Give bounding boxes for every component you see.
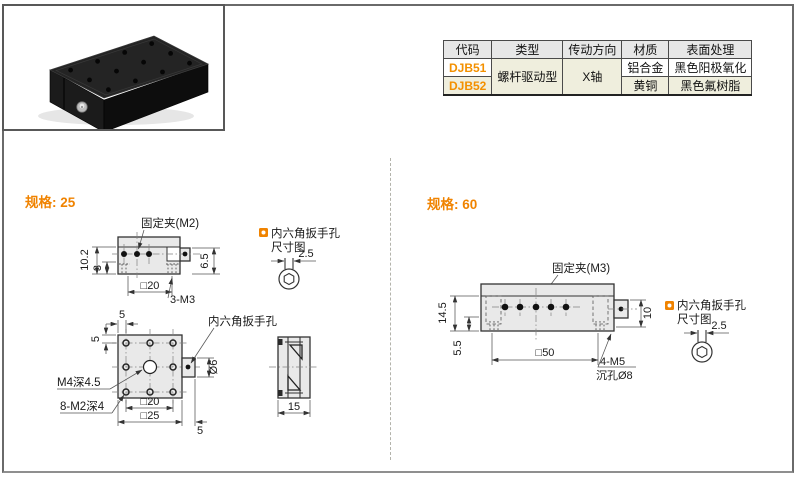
product-photo-box xyxy=(2,4,225,131)
spec60-4m5-label: 4-M5 xyxy=(600,356,625,368)
spec60-dim-5-5: 5.5 xyxy=(452,340,464,355)
table-row-djb51: DJB51 螺杆驱动型 X轴 铝合金 黑色阳极氧化 xyxy=(444,59,752,77)
spec25-center-hole xyxy=(144,361,157,374)
spec25-drawing: 固定夹(M2) 10.2 3 6.5 □20 3-M3 xyxy=(40,212,340,447)
col-material: 材质 xyxy=(622,41,669,59)
finish-djb52: 黑色氟树脂 xyxy=(669,77,752,96)
col-finish: 表面处理 xyxy=(669,41,752,59)
spec60-dim-14-5: 14.5 xyxy=(437,302,449,323)
spec60-dim-10: 10 xyxy=(642,307,654,319)
spec25-dim-10-2: 10.2 xyxy=(79,249,91,270)
spec60-dim-2-5: 2.5 xyxy=(711,320,726,332)
spec60-counterbore-label: 沉孔Ø8 xyxy=(596,369,633,382)
table-header-row: 代码 类型 传动方向 材质 表面处理 xyxy=(444,41,752,59)
product-photo xyxy=(4,6,223,129)
material-djb51: 铝合金 xyxy=(622,59,669,77)
spec60-title: 规格: 60 xyxy=(427,193,477,213)
direction-cell: X轴 xyxy=(563,59,622,96)
spec25-hex-circle xyxy=(279,269,299,289)
spec60-clamp-label: 固定夹(M3) xyxy=(552,261,610,275)
spec25-dim-d6: Ø6 xyxy=(208,360,220,375)
spec25-dim-5-right: 5 xyxy=(197,425,203,437)
section-divider xyxy=(390,158,391,460)
spec25-dim-15: 15 xyxy=(288,401,300,413)
spec25-dim-sq20-front: □20 xyxy=(141,280,160,292)
code-djb52: DJB52 xyxy=(444,77,492,96)
col-direction: 传动方向 xyxy=(563,41,622,59)
spec60-hex-circle xyxy=(692,342,712,362)
spec60-front-view: 固定夹(M3) xyxy=(437,261,654,382)
spec25-front-view: 固定夹(M2) 10.2 3 6.5 □20 3-M3 xyxy=(79,216,220,306)
spec25-m4-label: M4深4.5 xyxy=(57,375,100,389)
material-djb52: 黄铜 xyxy=(622,77,669,96)
spec25-dim-sq20-top: □20 xyxy=(141,396,160,408)
spec25-dim-5-left: 5 xyxy=(90,336,102,342)
spec25-dim-6-5: 6.5 xyxy=(199,253,211,268)
spec60-hex-note: 内六角扳手孔 尺寸图 2.5 xyxy=(665,298,746,362)
spec60-dim-sq50: □50 xyxy=(536,347,555,359)
stage-knob xyxy=(77,102,87,112)
spec25-hex-note: 内六角扳手孔 尺寸图 2.5 xyxy=(259,226,340,289)
code-djb51: DJB51 xyxy=(444,59,492,77)
spec25-clamp-label: 固定夹(M2) xyxy=(141,216,199,230)
catalog-page: 代码 类型 传动方向 材质 表面处理 DJB51 螺杆驱动型 X轴 铝合金 黑色… xyxy=(0,0,802,480)
spec25-dim-2-5: 2.5 xyxy=(298,248,313,260)
spec25-wrench-hole-label: 内六角扳手孔 xyxy=(208,314,277,328)
spec25-dim-sq25: □25 xyxy=(141,410,160,422)
spec60-hex-title: 内六角扳手孔 xyxy=(677,298,746,312)
finish-djb51: 黑色阳极氧化 xyxy=(669,59,752,77)
spec-table: 代码 类型 传动方向 材质 表面处理 DJB51 螺杆驱动型 X轴 铝合金 黑色… xyxy=(443,40,752,96)
col-type: 类型 xyxy=(492,41,563,59)
spec25-3m3-label: 3-M3 xyxy=(170,294,195,306)
spec25-hex-title: 内六角扳手孔 xyxy=(271,226,340,240)
col-code: 代码 xyxy=(444,41,492,59)
spec25-side-view: 15 xyxy=(269,337,319,417)
spec60-hex-subtitle: 尺寸图 xyxy=(677,312,712,326)
type-cell: 螺杆驱动型 xyxy=(492,59,563,96)
spec60-drawing: 固定夹(M3) xyxy=(430,255,800,395)
spec25-8m2-label: 8-M2深4 xyxy=(60,399,105,413)
spec25-dim-3: 3 xyxy=(92,265,104,271)
spec25-top-view: 5 5 内六角扳手孔 M4深4.5 8-M2深4 □20 □2 xyxy=(57,309,277,437)
spec25-dim-5-top: 5 xyxy=(119,309,125,321)
spec25-title: 规格: 25 xyxy=(25,191,75,211)
